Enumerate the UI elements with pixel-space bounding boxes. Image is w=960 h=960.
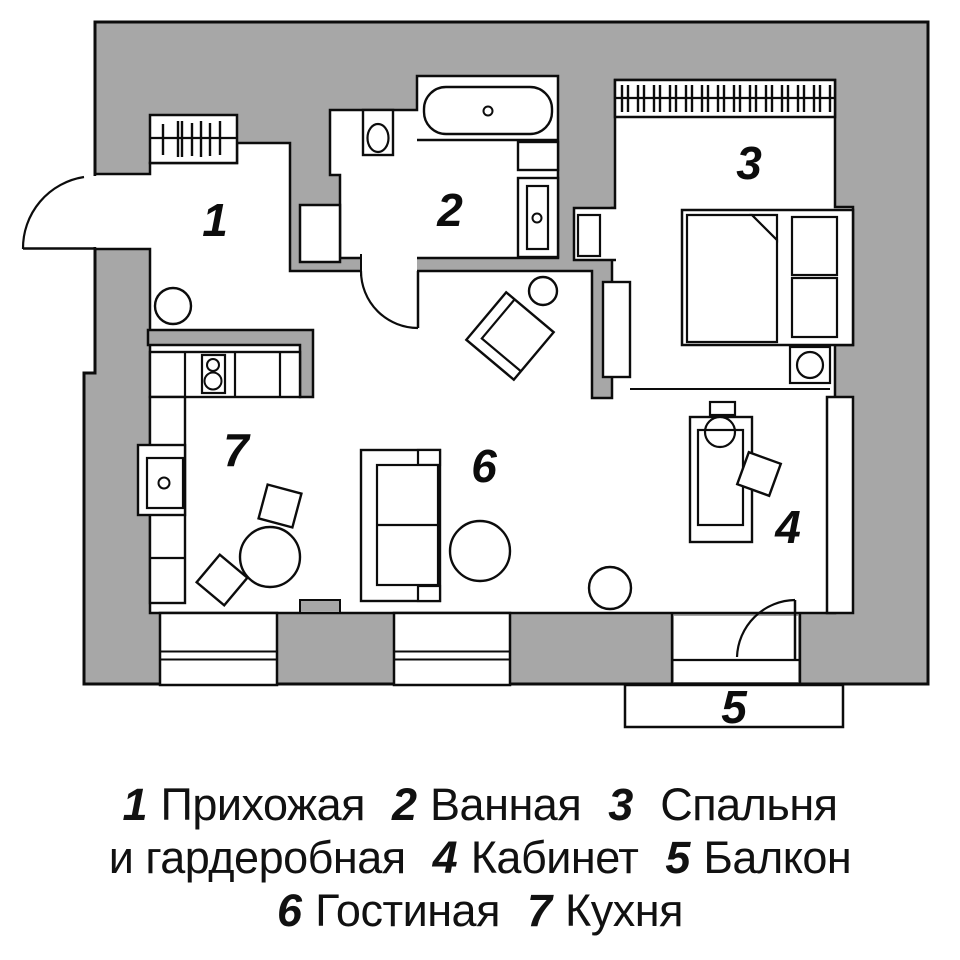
coffee-table [450, 521, 510, 581]
sofa [361, 450, 440, 601]
floor-plan-page: { "plan": { "type": "apartment-floor-pla… [0, 0, 960, 960]
legend-number: 2 [392, 779, 417, 831]
room-label-living-room: 6 [471, 440, 497, 492]
bedroom-dresser [603, 282, 630, 377]
bedroom-wardrobe [615, 80, 835, 117]
legend-room-name: Ванная [430, 779, 581, 831]
window-office-bay [827, 397, 853, 613]
bathtub [417, 87, 558, 140]
bathroom-vanity-sink [518, 178, 558, 257]
double-bed [682, 210, 853, 345]
alcove-radiator [578, 215, 600, 256]
balcony-opening [674, 616, 798, 682]
toilet [363, 110, 393, 155]
hallway-wardrobe [150, 115, 237, 163]
window-living-room [394, 613, 510, 685]
legend-number: 3 [608, 779, 633, 831]
legend-number: 5 [665, 832, 690, 884]
legend-room-name: Балкон [703, 832, 851, 884]
legend-number: 7 [527, 885, 552, 937]
room-label-kitchen: 7 [223, 424, 251, 476]
legend-line: 6 Гостиная 7 Кухня [0, 885, 960, 938]
kitchen-sink [138, 445, 185, 515]
room-label-balcony: 5 [721, 681, 748, 733]
room-label-hallway: 1 [202, 194, 228, 246]
kitchen-table [240, 527, 300, 587]
pillow [792, 217, 837, 275]
room-label-office: 4 [774, 501, 801, 553]
legend-line: 1 Прихожая 2 Ванная 3 Спальня [0, 779, 960, 832]
legend: 1 Прихожая 2 Ванная 3 Спальня и гардероб… [0, 779, 960, 938]
window-kitchen [160, 613, 277, 685]
room-label-bedroom: 3 [736, 137, 762, 189]
nightstand [790, 347, 830, 383]
legend-room-name: Кабинет [471, 832, 639, 884]
entrance-door-swing-arc [23, 177, 84, 249]
legend-number: 4 [433, 832, 458, 884]
pillow [792, 278, 837, 337]
room-label-bathroom: 2 [436, 184, 463, 236]
entrance-opening [88, 176, 99, 247]
legend-room-name: и гардеробная [109, 832, 406, 884]
legend-number: 6 [277, 885, 302, 937]
bathroom-shelf [518, 142, 558, 170]
legend-line: и гардеробная 4 Кабинет 5 Балкон [0, 832, 960, 885]
bathroom-door-opening [361, 253, 417, 277]
wall-step [300, 600, 340, 613]
legend-number: 1 [122, 779, 147, 831]
legend-room-name: Кухня [565, 885, 683, 937]
pouf [589, 567, 631, 609]
kitchen-stove [202, 355, 225, 393]
legend-room-name: Спальня [660, 779, 837, 831]
side-table [529, 277, 557, 305]
legend-room-name: Гостиная [315, 885, 500, 937]
kitchen-stool [259, 485, 302, 528]
wall-niche [300, 205, 340, 262]
hallway-stool [155, 288, 191, 324]
legend-room-name: Прихожая [160, 779, 365, 831]
floor-plan-drawing: 1 2 3 4 5 6 7 [0, 0, 960, 760]
